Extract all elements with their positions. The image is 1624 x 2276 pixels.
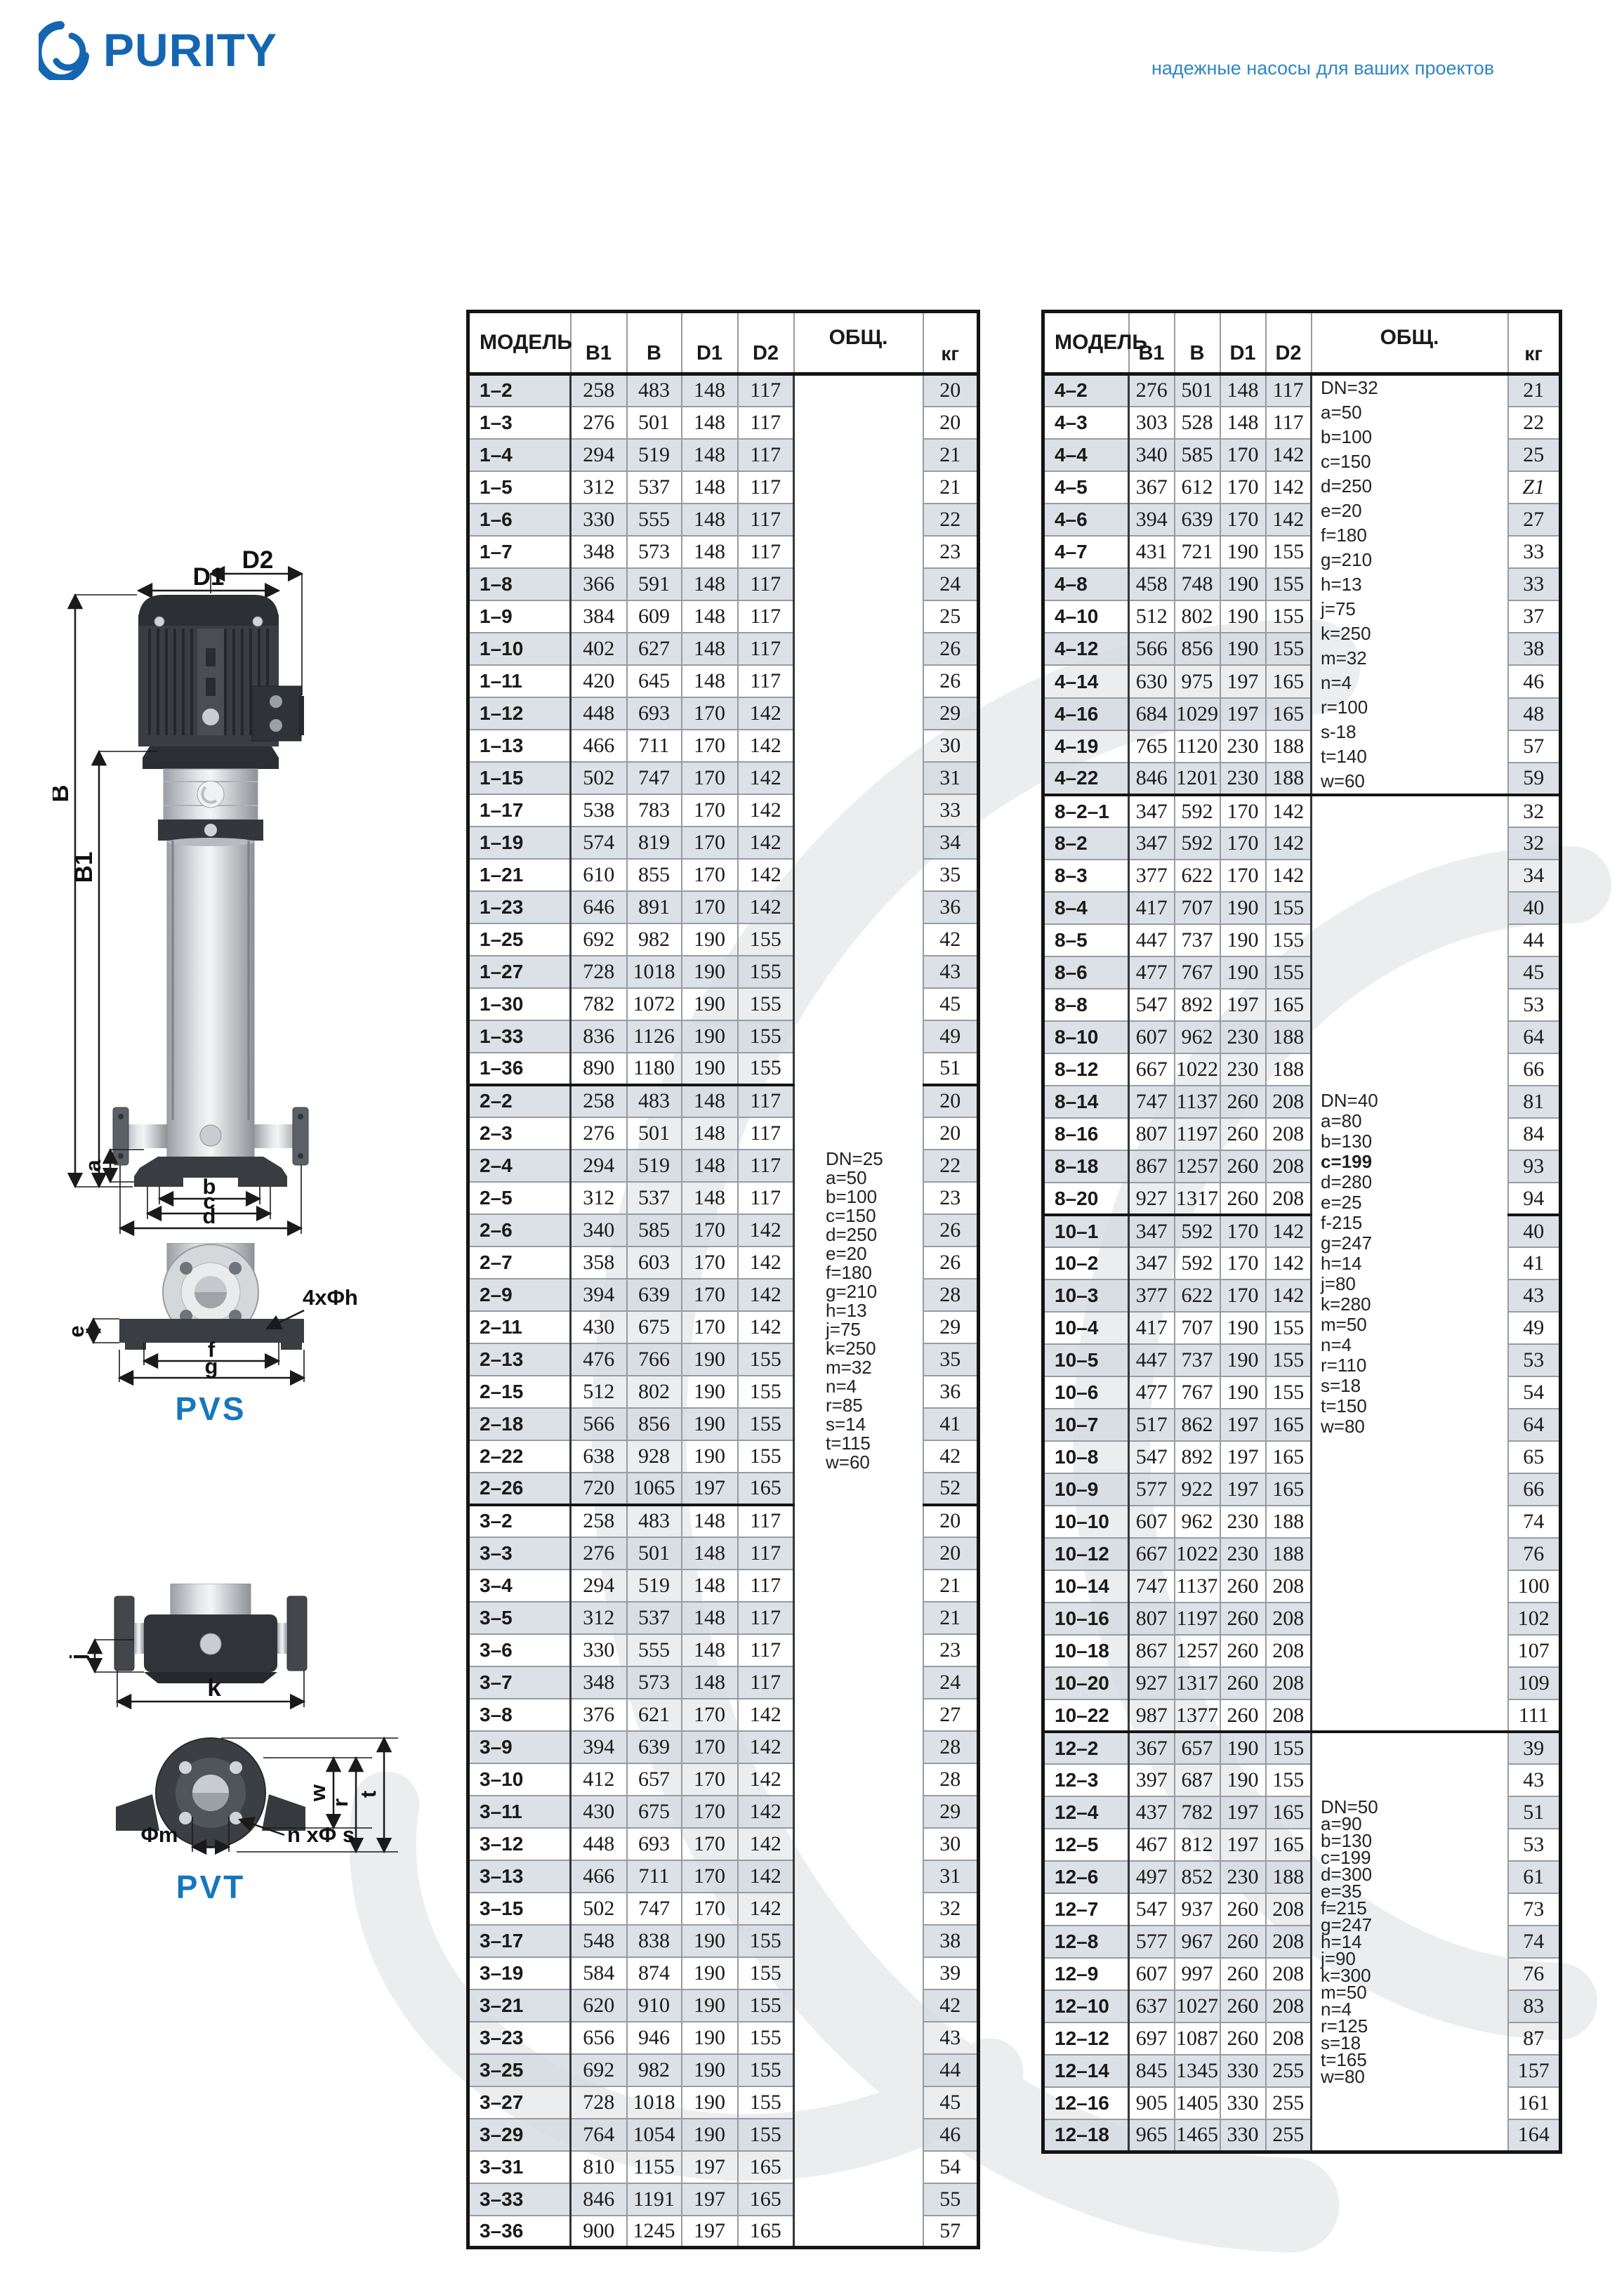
dim-value: 657 — [627, 1763, 682, 1796]
dim-value: 165 — [1266, 698, 1312, 730]
weight-kg: 45 — [1508, 956, 1561, 989]
dim-value: 117 — [738, 407, 794, 439]
dim-value: 165 — [1266, 1796, 1312, 1829]
model-name: 2–9 — [468, 1279, 571, 1311]
dim-value: 577 — [1129, 1926, 1175, 1958]
dim-value: 802 — [1175, 600, 1220, 633]
model-name: 8–6 — [1043, 956, 1129, 989]
dim-value: 260 — [1220, 1667, 1266, 1699]
dim-value: 982 — [627, 2054, 682, 2086]
model-name: 3–15 — [468, 1893, 571, 1925]
dim-value: 466 — [571, 1860, 627, 1893]
dim-value: 501 — [1175, 374, 1220, 407]
common-dimension-line: r=85 — [826, 1396, 923, 1415]
dim-value: 547 — [1129, 989, 1175, 1021]
common-dimension-line: j=80 — [1321, 1274, 1507, 1294]
common-dimensions-block: DN=40a=80b=130c=199d=280e=25f-215g=247h=… — [1312, 795, 1508, 1732]
common-dimension-line: h=13 — [1321, 572, 1507, 597]
weight-kg: 83 — [1508, 1990, 1561, 2022]
column-header: ОБЩ. — [1312, 312, 1508, 374]
weight-kg: 32 — [1508, 827, 1561, 860]
dim-value: 1405 — [1175, 2087, 1220, 2119]
dim-value: 142 — [738, 859, 794, 891]
dim-value: 348 — [571, 1666, 627, 1699]
dim-value: 519 — [627, 439, 682, 471]
dim-value: 208 — [1266, 1570, 1312, 1603]
dim-value: 155 — [1266, 1344, 1312, 1376]
dim-value: 1137 — [1175, 1086, 1220, 1118]
dim-value: 142 — [738, 1828, 794, 1860]
weight-kg: 26 — [923, 665, 979, 697]
dim-value: 402 — [571, 633, 627, 665]
column-header: B — [627, 312, 682, 374]
model-name: 4–2 — [1043, 374, 1129, 407]
weight-kg: 21 — [923, 1570, 979, 1602]
dim-value: 142 — [1266, 1247, 1312, 1280]
dim-value: 846 — [571, 2183, 627, 2216]
dim-value: 366 — [571, 568, 627, 600]
weight-kg: 35 — [923, 859, 979, 891]
dim-value: 170 — [1220, 795, 1266, 827]
dim-value: 1197 — [1175, 1118, 1220, 1150]
model-name: 4–22 — [1043, 763, 1129, 795]
common-dimension-line: e=20 — [1321, 499, 1507, 523]
dim-value: 142 — [1266, 795, 1312, 827]
weight-kg: 57 — [923, 2216, 979, 2248]
dim-value: 330 — [1220, 2087, 1266, 2119]
dim-value: 667 — [1129, 1538, 1175, 1570]
model-name: 10–10 — [1043, 1506, 1129, 1538]
common-dimension-line: g=210 — [1321, 548, 1507, 572]
dim-value: 165 — [1266, 1409, 1312, 1441]
weight-kg: 54 — [923, 2151, 979, 2183]
common-dimension-line: h=14 — [1321, 1254, 1507, 1274]
dim-label-w: w — [305, 1784, 330, 1802]
dim-value: 170 — [682, 891, 738, 923]
dim-value: 142 — [738, 1699, 794, 1731]
dim-value: 197 — [1220, 989, 1266, 1021]
dim-value: 852 — [1175, 1861, 1220, 1893]
dim-value: 142 — [738, 827, 794, 859]
model-name: 1–2 — [468, 374, 571, 407]
dim-value: 276 — [1129, 374, 1175, 407]
weight-kg: 32 — [1508, 795, 1561, 827]
model-name: 3–33 — [468, 2183, 571, 2216]
weight-kg: 161 — [1508, 2087, 1561, 2119]
weight-kg: 43 — [1508, 1280, 1561, 1312]
model-name: 1–30 — [468, 988, 571, 1020]
dim-value: 621 — [627, 1699, 682, 1731]
dim-value: 148 — [682, 1570, 738, 1602]
dim-value: 117 — [738, 665, 794, 697]
model-name: 4–19 — [1043, 730, 1129, 763]
dim-value: 142 — [1266, 471, 1312, 504]
dim-value: 937 — [1175, 1893, 1220, 1926]
dim-value: 117 — [738, 600, 794, 633]
dim-value: 260 — [1220, 1570, 1266, 1603]
dim-label-a: a — [81, 1159, 105, 1172]
dim-value: 117 — [1266, 374, 1312, 407]
dim-value: 148 — [682, 1505, 738, 1537]
dim-value: 170 — [1220, 1215, 1266, 1247]
common-dimension-line: k=280 — [1321, 1294, 1507, 1315]
dim-value: 142 — [1266, 1280, 1312, 1312]
dim-value: 412 — [571, 1763, 627, 1796]
model-name: 2–2 — [468, 1085, 571, 1117]
model-name: 12–8 — [1043, 1926, 1129, 1958]
dim-value: 170 — [682, 859, 738, 891]
dim-value: 117 — [738, 1602, 794, 1634]
dim-value: 190 — [682, 1053, 738, 1085]
weight-kg: 64 — [1508, 1021, 1561, 1053]
dim-value: 555 — [627, 504, 682, 536]
weight-kg: 20 — [923, 374, 979, 407]
dim-value: 148 — [682, 633, 738, 665]
table-row: 4–2276501148117DN=32a=50b=100c=150d=250e… — [1043, 374, 1561, 407]
dim-value: 142 — [738, 1311, 794, 1343]
dim-value: 782 — [571, 988, 627, 1020]
common-dimension-line: c=199 — [1321, 1152, 1507, 1172]
dim-value: 330 — [1220, 2119, 1266, 2152]
weight-kg: 49 — [1508, 1312, 1561, 1344]
dim-value: 856 — [1175, 633, 1220, 665]
dim-value: 260 — [1220, 1958, 1266, 1990]
weight-kg: 38 — [1508, 633, 1561, 665]
dim-label-nphis: n xΦ s — [287, 1822, 355, 1847]
model-name: 10–6 — [1043, 1376, 1129, 1409]
weight-kg: 27 — [1508, 504, 1561, 536]
dim-value: 148 — [682, 1117, 738, 1150]
dim-value: 208 — [1266, 1118, 1312, 1150]
weight-kg: 42 — [923, 1440, 979, 1473]
dim-value: 466 — [571, 730, 627, 762]
dim-value: 348 — [571, 536, 627, 568]
model-name: 3–11 — [468, 1796, 571, 1828]
dim-value: 170 — [1220, 1280, 1266, 1312]
model-name: 12–16 — [1043, 2087, 1129, 2119]
weight-kg: 39 — [1508, 1732, 1561, 1764]
dim-value: 812 — [1175, 1829, 1220, 1861]
dim-value: 330 — [1220, 2055, 1266, 2087]
weight-kg: 20 — [923, 407, 979, 439]
weight-kg: 20 — [923, 1537, 979, 1570]
dim-value: 197 — [1220, 665, 1266, 697]
dim-value: 170 — [1220, 439, 1266, 471]
weight-kg: 26 — [923, 1214, 979, 1246]
common-dimension-line: f=180 — [826, 1263, 923, 1282]
dim-value: 190 — [682, 1957, 738, 1989]
dim-value: 170 — [682, 1763, 738, 1796]
dim-value: 592 — [1175, 795, 1220, 827]
common-dimension-line: h=13 — [826, 1301, 923, 1320]
common-dimension-line: s=14 — [826, 1415, 923, 1434]
dim-value: 148 — [682, 665, 738, 697]
common-dimension-line: m=50 — [1321, 1315, 1507, 1335]
dim-value: 330 — [571, 504, 627, 536]
dim-value: 1155 — [627, 2151, 682, 2183]
weight-kg: 30 — [923, 730, 979, 762]
weight-kg: 36 — [923, 1376, 979, 1408]
dim-value: 502 — [571, 762, 627, 794]
dim-value: 165 — [738, 1473, 794, 1505]
dim-value: 501 — [627, 1537, 682, 1570]
dim-value: 962 — [1175, 1021, 1220, 1053]
dim-value: 1018 — [627, 956, 682, 988]
dim-value: 458 — [1129, 568, 1175, 600]
dim-value: 607 — [1129, 1021, 1175, 1053]
dim-value: 148 — [682, 439, 738, 471]
dim-value: 170 — [682, 1796, 738, 1828]
dim-value: 208 — [1266, 1699, 1312, 1732]
dim-value: 765 — [1129, 730, 1175, 763]
dim-value: 639 — [627, 1731, 682, 1763]
dim-value: 165 — [1266, 1829, 1312, 1861]
dim-value: 810 — [571, 2151, 627, 2183]
model-name: 3–10 — [468, 1763, 571, 1796]
dim-value: 577 — [1129, 1473, 1175, 1506]
dim-value: 117 — [738, 439, 794, 471]
model-name: 1–36 — [468, 1053, 571, 1085]
weight-kg: 28 — [923, 1731, 979, 1763]
weight-kg: 81 — [1508, 1086, 1561, 1118]
dim-label-t: t — [356, 1791, 381, 1798]
dim-value: 856 — [627, 1408, 682, 1440]
dim-value: 905 — [1129, 2087, 1175, 2119]
dim-value: 928 — [627, 1440, 682, 1473]
model-name: 10–18 — [1043, 1635, 1129, 1667]
column-header: кг — [923, 312, 979, 374]
model-name: 8–3 — [1043, 860, 1129, 892]
model-name: 1–3 — [468, 407, 571, 439]
dim-value: 276 — [571, 407, 627, 439]
dim-value: 707 — [1175, 892, 1220, 924]
dim-value: 190 — [682, 2119, 738, 2151]
weight-kg: 74 — [1508, 1506, 1561, 1538]
column-header: D1 — [682, 312, 738, 374]
dim-value: 170 — [1220, 860, 1266, 892]
dim-value: 962 — [1175, 1506, 1220, 1538]
weight-kg: 31 — [923, 762, 979, 794]
model-name: 3–25 — [468, 2054, 571, 2086]
dim-value: 190 — [682, 2086, 738, 2119]
dim-value: 646 — [571, 891, 627, 923]
dim-value: 638 — [571, 1440, 627, 1473]
common-dimensions-block: DN=50a=90b=130c=199d=300e=35f=215g=247h=… — [1312, 1732, 1508, 2152]
model-name: 10–22 — [1043, 1699, 1129, 1732]
weight-kg: 43 — [1508, 1764, 1561, 1796]
common-dimension-line: g=210 — [826, 1282, 923, 1301]
dim-value: 165 — [1266, 1473, 1312, 1506]
dim-value: 637 — [1129, 1990, 1175, 2022]
dim-value: 922 — [1175, 1473, 1220, 1506]
dim-value: 592 — [1175, 1215, 1220, 1247]
model-name: 4–7 — [1043, 536, 1129, 568]
dim-value: 190 — [682, 1376, 738, 1408]
dim-value: 675 — [627, 1796, 682, 1828]
dim-value: 1180 — [627, 1053, 682, 1085]
dim-value: 117 — [738, 1570, 794, 1602]
dim-value: 197 — [1220, 1409, 1266, 1441]
dim-value: 117 — [738, 536, 794, 568]
pump-front-view-drawing: D2 D1 B B1 a — [53, 544, 432, 1243]
dim-value: 117 — [738, 1634, 794, 1666]
model-name: 1–5 — [468, 471, 571, 504]
dim-value: 260 — [1220, 1926, 1266, 1958]
dim-value: 142 — [1266, 827, 1312, 860]
dim-value: 190 — [682, 2054, 738, 2086]
model-name: 8–14 — [1043, 1086, 1129, 1118]
dim-value: 555 — [627, 1634, 682, 1666]
dim-value: 1317 — [1175, 1667, 1220, 1699]
dim-value: 630 — [1129, 665, 1175, 697]
dim-value: 417 — [1129, 1312, 1175, 1344]
model-name: 12–2 — [1043, 1732, 1129, 1764]
dim-value: 142 — [1266, 1215, 1312, 1247]
model-name: 10–4 — [1043, 1312, 1129, 1344]
dim-value: 519 — [627, 1150, 682, 1182]
dim-value: 1257 — [1175, 1150, 1220, 1183]
dim-value: 142 — [1266, 504, 1312, 536]
dim-value: 711 — [627, 1860, 682, 1893]
dim-value: 330 — [571, 1634, 627, 1666]
weight-kg: 100 — [1508, 1570, 1561, 1603]
dim-value: 155 — [738, 2054, 794, 2086]
dim-value: 188 — [1266, 1021, 1312, 1053]
dim-value: 208 — [1266, 1990, 1312, 2022]
purity-logo-icon — [39, 20, 96, 80]
dim-value: 512 — [1129, 600, 1175, 633]
dim-value: 260 — [1220, 1893, 1266, 1926]
dim-value: 467 — [1129, 1829, 1175, 1861]
dim-value: 190 — [682, 1408, 738, 1440]
common-dimension-line: e=25 — [1321, 1192, 1507, 1213]
dim-value: 142 — [738, 1796, 794, 1828]
model-name: 3–19 — [468, 1957, 571, 1989]
dim-value: 340 — [1129, 439, 1175, 471]
model-name: 3–36 — [468, 2216, 571, 2248]
dim-value: 294 — [571, 1150, 627, 1182]
dim-value: 142 — [738, 697, 794, 730]
dim-value: 258 — [571, 1085, 627, 1117]
dim-value: 170 — [682, 697, 738, 730]
dim-value: 260 — [1220, 1635, 1266, 1667]
dim-value: 1191 — [627, 2183, 682, 2216]
dim-value: 155 — [1266, 600, 1312, 633]
dim-value: 155 — [1266, 956, 1312, 989]
dim-value: 1054 — [627, 2119, 682, 2151]
dim-value: 585 — [627, 1214, 682, 1246]
weight-kg: 26 — [923, 1246, 979, 1279]
model-name: 1–11 — [468, 665, 571, 697]
dim-value: 197 — [1220, 1796, 1266, 1829]
weight-kg: 55 — [923, 2183, 979, 2216]
weight-kg: 29 — [923, 697, 979, 730]
dim-value: 892 — [1175, 989, 1220, 1021]
dim-value: 965 — [1129, 2119, 1175, 2152]
common-dimension-line: j=75 — [826, 1320, 923, 1339]
dim-value: 208 — [1266, 1183, 1312, 1215]
dim-value: 609 — [627, 600, 682, 633]
dim-value: 846 — [1129, 763, 1175, 795]
dim-value: 1201 — [1175, 763, 1220, 795]
model-name: 2–18 — [468, 1408, 571, 1440]
dim-value: 155 — [1266, 536, 1312, 568]
model-name: 1–4 — [468, 439, 571, 471]
common-dimension-line: a=50 — [1321, 400, 1507, 425]
dim-value: 946 — [627, 2022, 682, 2054]
dim-value: 155 — [1266, 633, 1312, 665]
dim-value: 728 — [571, 956, 627, 988]
dim-value: 538 — [571, 794, 627, 827]
dim-value: 591 — [627, 568, 682, 600]
dim-value: 155 — [738, 1343, 794, 1376]
weight-kg: 42 — [923, 1989, 979, 2022]
dim-value: 610 — [571, 859, 627, 891]
dim-value: 190 — [1220, 1376, 1266, 1409]
dim-value: 573 — [627, 1666, 682, 1699]
dim-value: 347 — [1129, 827, 1175, 860]
dim-value: 155 — [738, 1408, 794, 1440]
dim-value: 430 — [571, 1311, 627, 1343]
weight-kg: 44 — [923, 2054, 979, 2086]
model-name: 2–4 — [468, 1150, 571, 1182]
dim-value: 483 — [627, 1085, 682, 1117]
model-name: 4–3 — [1043, 407, 1129, 439]
dim-value: 347 — [1129, 1215, 1175, 1247]
common-dimension-line: w=80 — [1321, 2068, 1507, 2085]
weight-kg: 29 — [923, 1311, 979, 1343]
dim-value: 142 — [738, 1246, 794, 1279]
common-dimensions-block: DN=25a=50b=100c=150d=250e=20f=180g=210h=… — [794, 374, 923, 2248]
dim-value: 197 — [1220, 1441, 1266, 1473]
dim-value: 155 — [1266, 924, 1312, 956]
dim-value: 967 — [1175, 1926, 1220, 1958]
dim-value: 900 — [571, 2216, 627, 2248]
dim-value: 190 — [1220, 536, 1266, 568]
model-name: 8–20 — [1043, 1183, 1129, 1215]
dim-value: 155 — [738, 1440, 794, 1473]
common-dimension-line: f=180 — [1321, 523, 1507, 548]
dim-value: 117 — [738, 471, 794, 504]
dim-value: 142 — [738, 1731, 794, 1763]
model-name: 1–7 — [468, 536, 571, 568]
model-name: 4–4 — [1043, 439, 1129, 471]
dim-value: 148 — [682, 1150, 738, 1182]
dim-value: 188 — [1266, 1538, 1312, 1570]
weight-kg: 43 — [923, 956, 979, 988]
dim-value: 483 — [627, 374, 682, 407]
dim-value: 155 — [1266, 892, 1312, 924]
dim-value: 142 — [738, 1279, 794, 1311]
common-dimension-line: d=280 — [1321, 1172, 1507, 1192]
dim-value: 148 — [682, 1602, 738, 1634]
dim-value: 358 — [571, 1246, 627, 1279]
dim-value: 190 — [1220, 956, 1266, 989]
model-name: 1–8 — [468, 568, 571, 600]
dim-value: 260 — [1220, 1699, 1266, 1732]
dim-value: 547 — [1129, 1441, 1175, 1473]
pvt-views-drawing: j k w r t Φm n xΦ s PVT — [53, 1584, 432, 1914]
common-dimension-line: s-18 — [1321, 720, 1507, 744]
dim-value: 255 — [1266, 2119, 1312, 2152]
weight-kg: 42 — [923, 923, 979, 956]
model-name: 3–27 — [468, 2086, 571, 2119]
dim-value: 437 — [1129, 1796, 1175, 1829]
model-name: 8–10 — [1043, 1021, 1129, 1053]
weight-kg: 33 — [1508, 568, 1561, 600]
weight-kg: 24 — [923, 1666, 979, 1699]
dim-value: 170 — [682, 1828, 738, 1860]
